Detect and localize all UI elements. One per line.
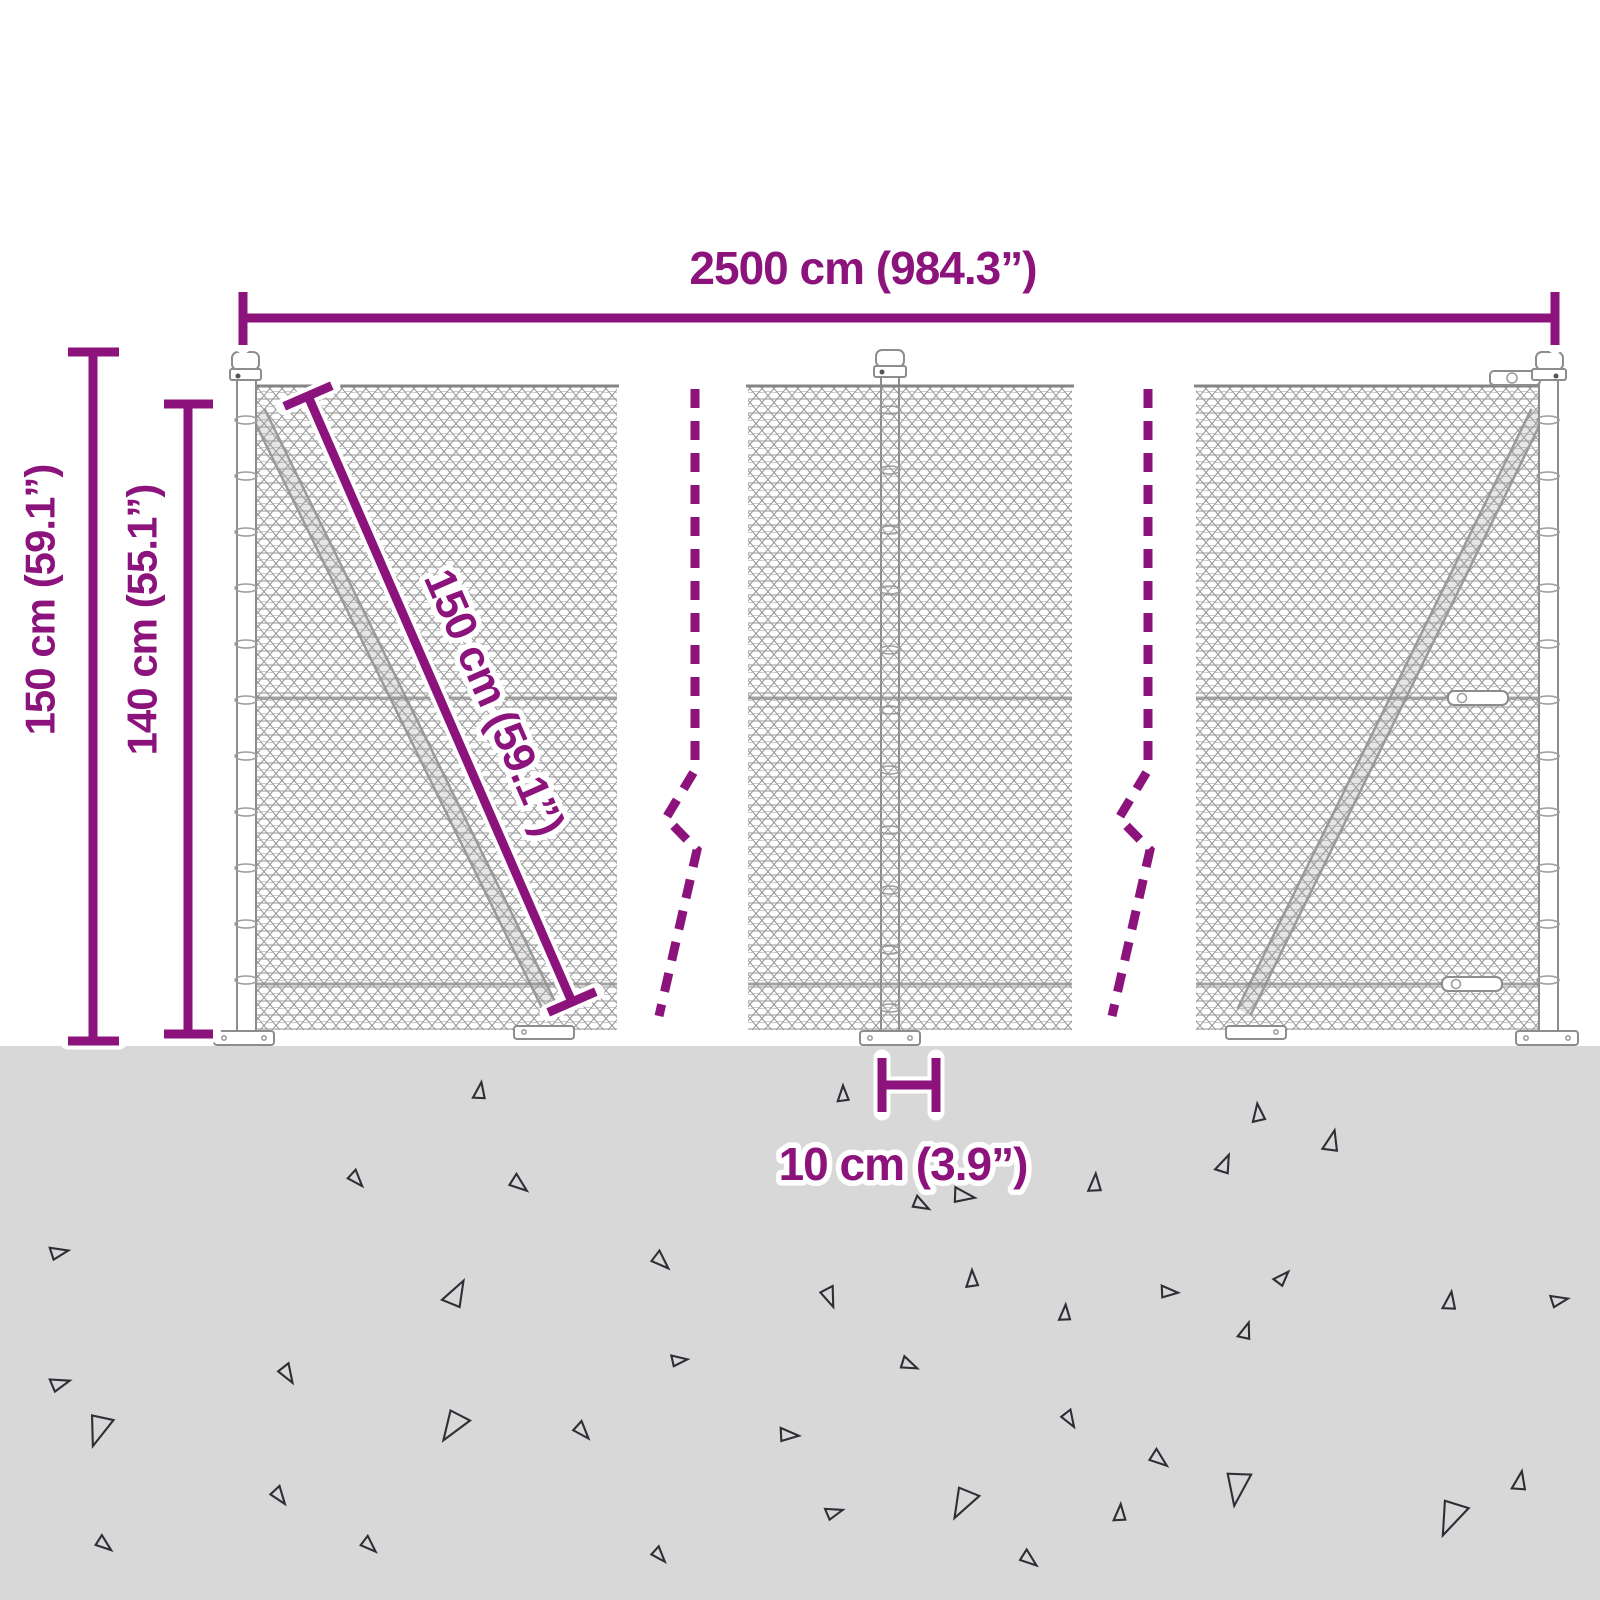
dim-mesh-height: 140 cm (55.1”)	[119, 404, 214, 1034]
dim-mesh-height-label: 140 cm (55.1”)	[119, 485, 166, 756]
dim-base-gap-label: 10 cm (3.9”)	[779, 1138, 1028, 1190]
fence-dimension-diagram: 2500 cm (984.3”) 150 cm (59.1”) 140 cm (…	[0, 0, 1600, 1600]
diagram-canvas: 2500 cm (984.3”) 150 cm (59.1”) 140 cm (…	[0, 0, 1600, 1600]
brace-foot-1	[514, 1026, 574, 1039]
fence	[214, 350, 1578, 1045]
brace-foot-3	[1226, 1026, 1286, 1039]
dim-total-width-line	[243, 292, 1555, 345]
mesh-panel-2	[746, 385, 1074, 1030]
dim-post-height-line	[68, 352, 119, 1041]
dim-total-width-label: 2500 cm (984.3”)	[689, 242, 1036, 294]
post-cap	[232, 352, 259, 370]
dim-post-height: 150 cm (59.1”)	[17, 352, 120, 1041]
mesh-panel-3	[1194, 385, 1546, 1030]
post-clamp	[1532, 369, 1566, 380]
dim-total-width: 2500 cm (984.3”)	[243, 242, 1555, 345]
break-line-left	[659, 389, 697, 1016]
ground	[0, 1046, 1600, 1600]
post-clamp	[230, 369, 261, 380]
dim-mesh-height-line	[164, 404, 213, 1034]
post-cap	[1536, 352, 1563, 370]
left-post	[230, 352, 261, 1034]
break-line-right	[1112, 389, 1150, 1016]
turnbuckle-bottom	[1442, 977, 1502, 991]
turnbuckle-top	[1448, 691, 1508, 705]
middle-post-cap	[874, 350, 906, 377]
dim-post-height-label: 150 cm (59.1”)	[17, 465, 64, 736]
